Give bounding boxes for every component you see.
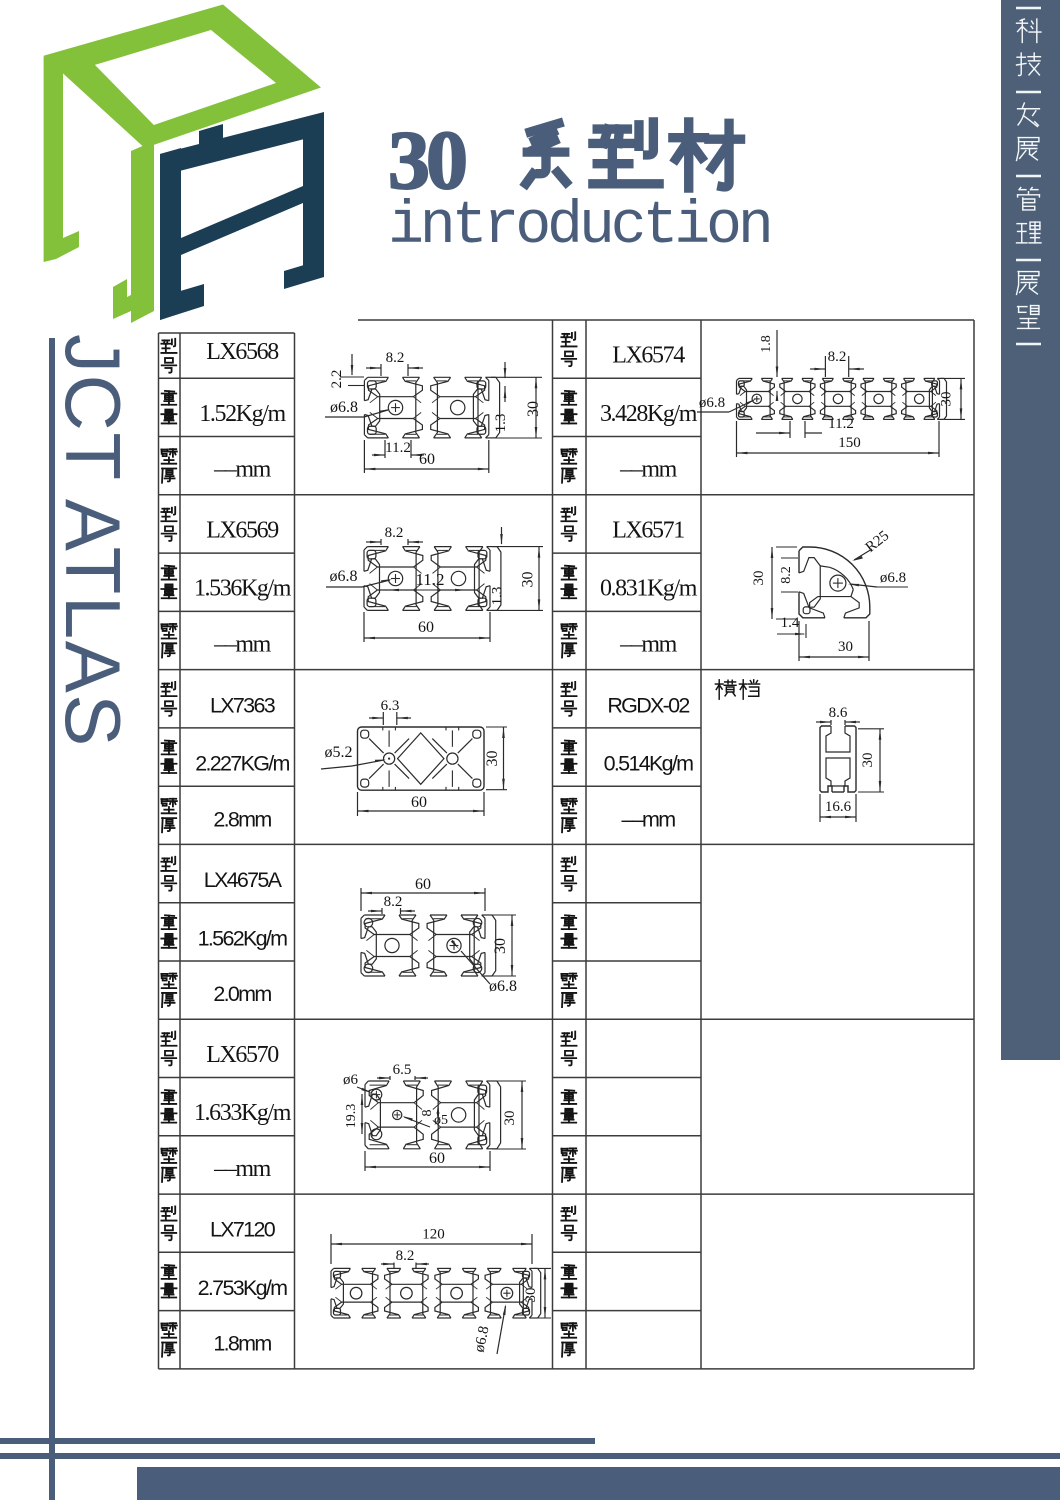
svg-text:LX6569: LX6569 xyxy=(206,517,279,543)
svg-text:60: 60 xyxy=(418,619,434,636)
svg-text:11.2: 11.2 xyxy=(385,440,411,456)
svg-text:8.6: 8.6 xyxy=(829,705,848,721)
svg-text:60: 60 xyxy=(419,451,435,468)
svg-text:11.2: 11.2 xyxy=(828,416,854,432)
svg-text:30: 30 xyxy=(860,753,876,768)
svg-text:LX4675A: LX4675A xyxy=(204,868,283,892)
svg-text:0.831Kg/m: 0.831Kg/m xyxy=(600,576,698,602)
svg-text:30: 30 xyxy=(525,401,542,417)
svg-text:8.2: 8.2 xyxy=(384,894,403,910)
svg-text:2.753Kg/m: 2.753Kg/m xyxy=(198,1276,287,1300)
svg-text:120: 120 xyxy=(422,1227,445,1243)
svg-text:1.3: 1.3 xyxy=(493,414,509,433)
svg-text:8.2: 8.2 xyxy=(386,350,405,366)
svg-text:ø6: ø6 xyxy=(343,1072,359,1088)
svg-text:16.6: 16.6 xyxy=(825,799,852,815)
svg-text:LX6571: LX6571 xyxy=(612,517,684,543)
svg-text:LX6568: LX6568 xyxy=(206,339,279,365)
svg-text:ø5.2: ø5.2 xyxy=(325,744,353,761)
svg-text:RGDX-02: RGDX-02 xyxy=(607,693,689,717)
svg-text:––mm: ––mm xyxy=(213,457,271,483)
svg-text:1.3: 1.3 xyxy=(490,587,506,606)
svg-text:––mm: ––mm xyxy=(619,632,677,658)
svg-text:LX6574: LX6574 xyxy=(612,343,685,369)
svg-text:ø6.8: ø6.8 xyxy=(880,570,906,586)
svg-text:2.227KG/m: 2.227KG/m xyxy=(195,752,289,776)
svg-text:30: 30 xyxy=(492,938,509,954)
svg-text:30: 30 xyxy=(523,1288,539,1303)
svg-text:JCT ATLAS: JCT ATLAS xyxy=(49,334,137,748)
svg-text:ø6.8: ø6.8 xyxy=(489,978,517,995)
svg-text:LX7120: LX7120 xyxy=(210,1218,276,1242)
svg-text:3.428Kg/m: 3.428Kg/m xyxy=(600,401,698,427)
svg-text:1.8mm: 1.8mm xyxy=(213,1332,271,1356)
svg-text:8.2: 8.2 xyxy=(779,566,794,584)
svg-text:2.2: 2.2 xyxy=(329,370,345,389)
svg-text:––mm: ––mm xyxy=(622,807,676,831)
svg-text:30: 30 xyxy=(838,639,853,655)
svg-text:30: 30 xyxy=(939,392,955,407)
svg-text:11.2: 11.2 xyxy=(415,570,444,589)
svg-text:ø6.8: ø6.8 xyxy=(330,399,358,416)
svg-text:1.8: 1.8 xyxy=(759,335,774,353)
svg-text:6.3: 6.3 xyxy=(381,698,400,714)
svg-text:0.514Kg/m: 0.514Kg/m xyxy=(604,752,693,776)
svg-text:8.2: 8.2 xyxy=(828,349,847,365)
svg-text:8.2: 8.2 xyxy=(396,1248,415,1264)
svg-text:LX7363: LX7363 xyxy=(210,693,276,717)
svg-text:1.562Kg/m: 1.562Kg/m xyxy=(198,926,287,950)
svg-text:6.5: 6.5 xyxy=(393,1062,412,1078)
svg-text:ø6.8: ø6.8 xyxy=(472,1325,493,1354)
svg-text:8.2: 8.2 xyxy=(385,525,404,541)
svg-text:1.536Kg/m: 1.536Kg/m xyxy=(194,576,292,602)
svg-text:60: 60 xyxy=(429,1150,445,1167)
svg-text:1.52Kg/m: 1.52Kg/m xyxy=(199,401,286,427)
svg-text:30: 30 xyxy=(520,572,537,588)
svg-text:2.0mm: 2.0mm xyxy=(213,982,271,1006)
svg-text:ø6.8: ø6.8 xyxy=(699,395,725,411)
svg-text:ø6.8: ø6.8 xyxy=(330,568,358,585)
svg-text:19.3: 19.3 xyxy=(344,1104,359,1129)
svg-text:introduction: introduction xyxy=(388,193,770,261)
svg-text:––mm: ––mm xyxy=(213,1156,271,1182)
svg-text:2.8mm: 2.8mm xyxy=(213,807,271,831)
svg-text:30: 30 xyxy=(484,751,501,767)
svg-text:––mm: ––mm xyxy=(619,457,677,483)
svg-text:30: 30 xyxy=(751,571,767,586)
svg-text:––mm: ––mm xyxy=(213,632,271,658)
svg-text:1.4: 1.4 xyxy=(781,615,800,631)
svg-text:150: 150 xyxy=(838,435,861,451)
svg-text:LX6570: LX6570 xyxy=(206,1042,279,1068)
svg-text:30: 30 xyxy=(502,1111,518,1126)
svg-text:ø5: ø5 xyxy=(434,1113,448,1128)
svg-text:8: 8 xyxy=(420,1110,435,1117)
svg-text:60: 60 xyxy=(411,794,427,811)
svg-text:1.633Kg/m: 1.633Kg/m xyxy=(194,1100,292,1126)
svg-text:60: 60 xyxy=(415,876,431,893)
